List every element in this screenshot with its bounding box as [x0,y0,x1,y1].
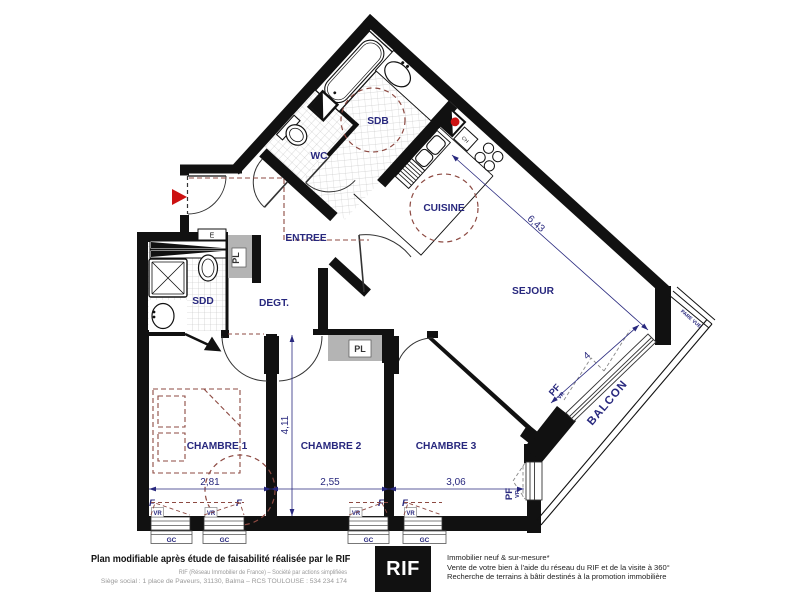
svg-text:ENTREE: ENTREE [285,233,327,244]
svg-text:4,11: 4,11 [280,415,291,434]
svg-text:CHAMBRE 3: CHAMBRE 3 [416,441,477,452]
svg-text:SDB: SDB [367,116,389,127]
svg-text:GC: GC [220,537,230,544]
svg-text:GC: GC [364,537,374,544]
svg-text:VR: VR [153,511,162,517]
svg-text:DEGT.: DEGT. [259,298,289,309]
svg-text:SEJOUR: SEJOUR [512,286,555,297]
svg-text:PL: PL [231,252,241,264]
svg-text:PF: PF [504,488,515,500]
svg-text:GC: GC [420,537,430,544]
svg-text:SDD: SDD [192,296,214,307]
svg-text:PL: PL [354,344,366,354]
svg-text:2,55: 2,55 [320,477,340,488]
svg-text:2,81: 2,81 [200,477,220,488]
svg-text:VR: VR [515,490,521,498]
svg-text:CHAMBRE 2: CHAMBRE 2 [301,441,362,452]
svg-text:CUISINE: CUISINE [423,203,465,214]
svg-text:3,06: 3,06 [446,477,466,488]
svg-text:WC: WC [311,151,329,162]
svg-text:E: E [210,233,215,240]
svg-text:F: F [149,498,155,509]
svg-text:F: F [402,498,408,509]
svg-text:CHAMBRE 1: CHAMBRE 1 [187,441,248,452]
svg-text:F: F [378,498,384,509]
svg-text:GC: GC [167,537,177,544]
svg-text:VR: VR [406,511,415,517]
